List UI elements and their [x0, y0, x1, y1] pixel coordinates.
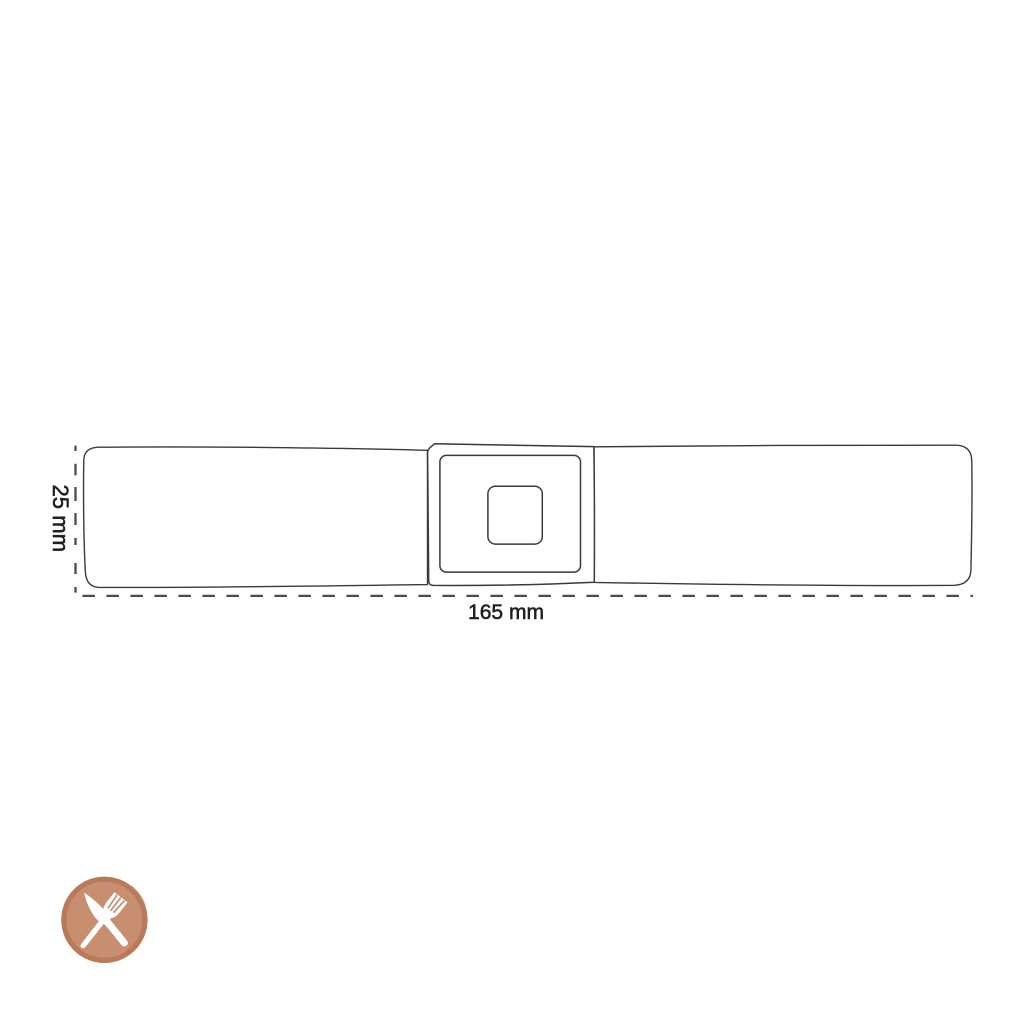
svg-text:25 mm: 25 mm — [48, 485, 73, 553]
svg-text:165 mm: 165 mm — [468, 600, 544, 624]
